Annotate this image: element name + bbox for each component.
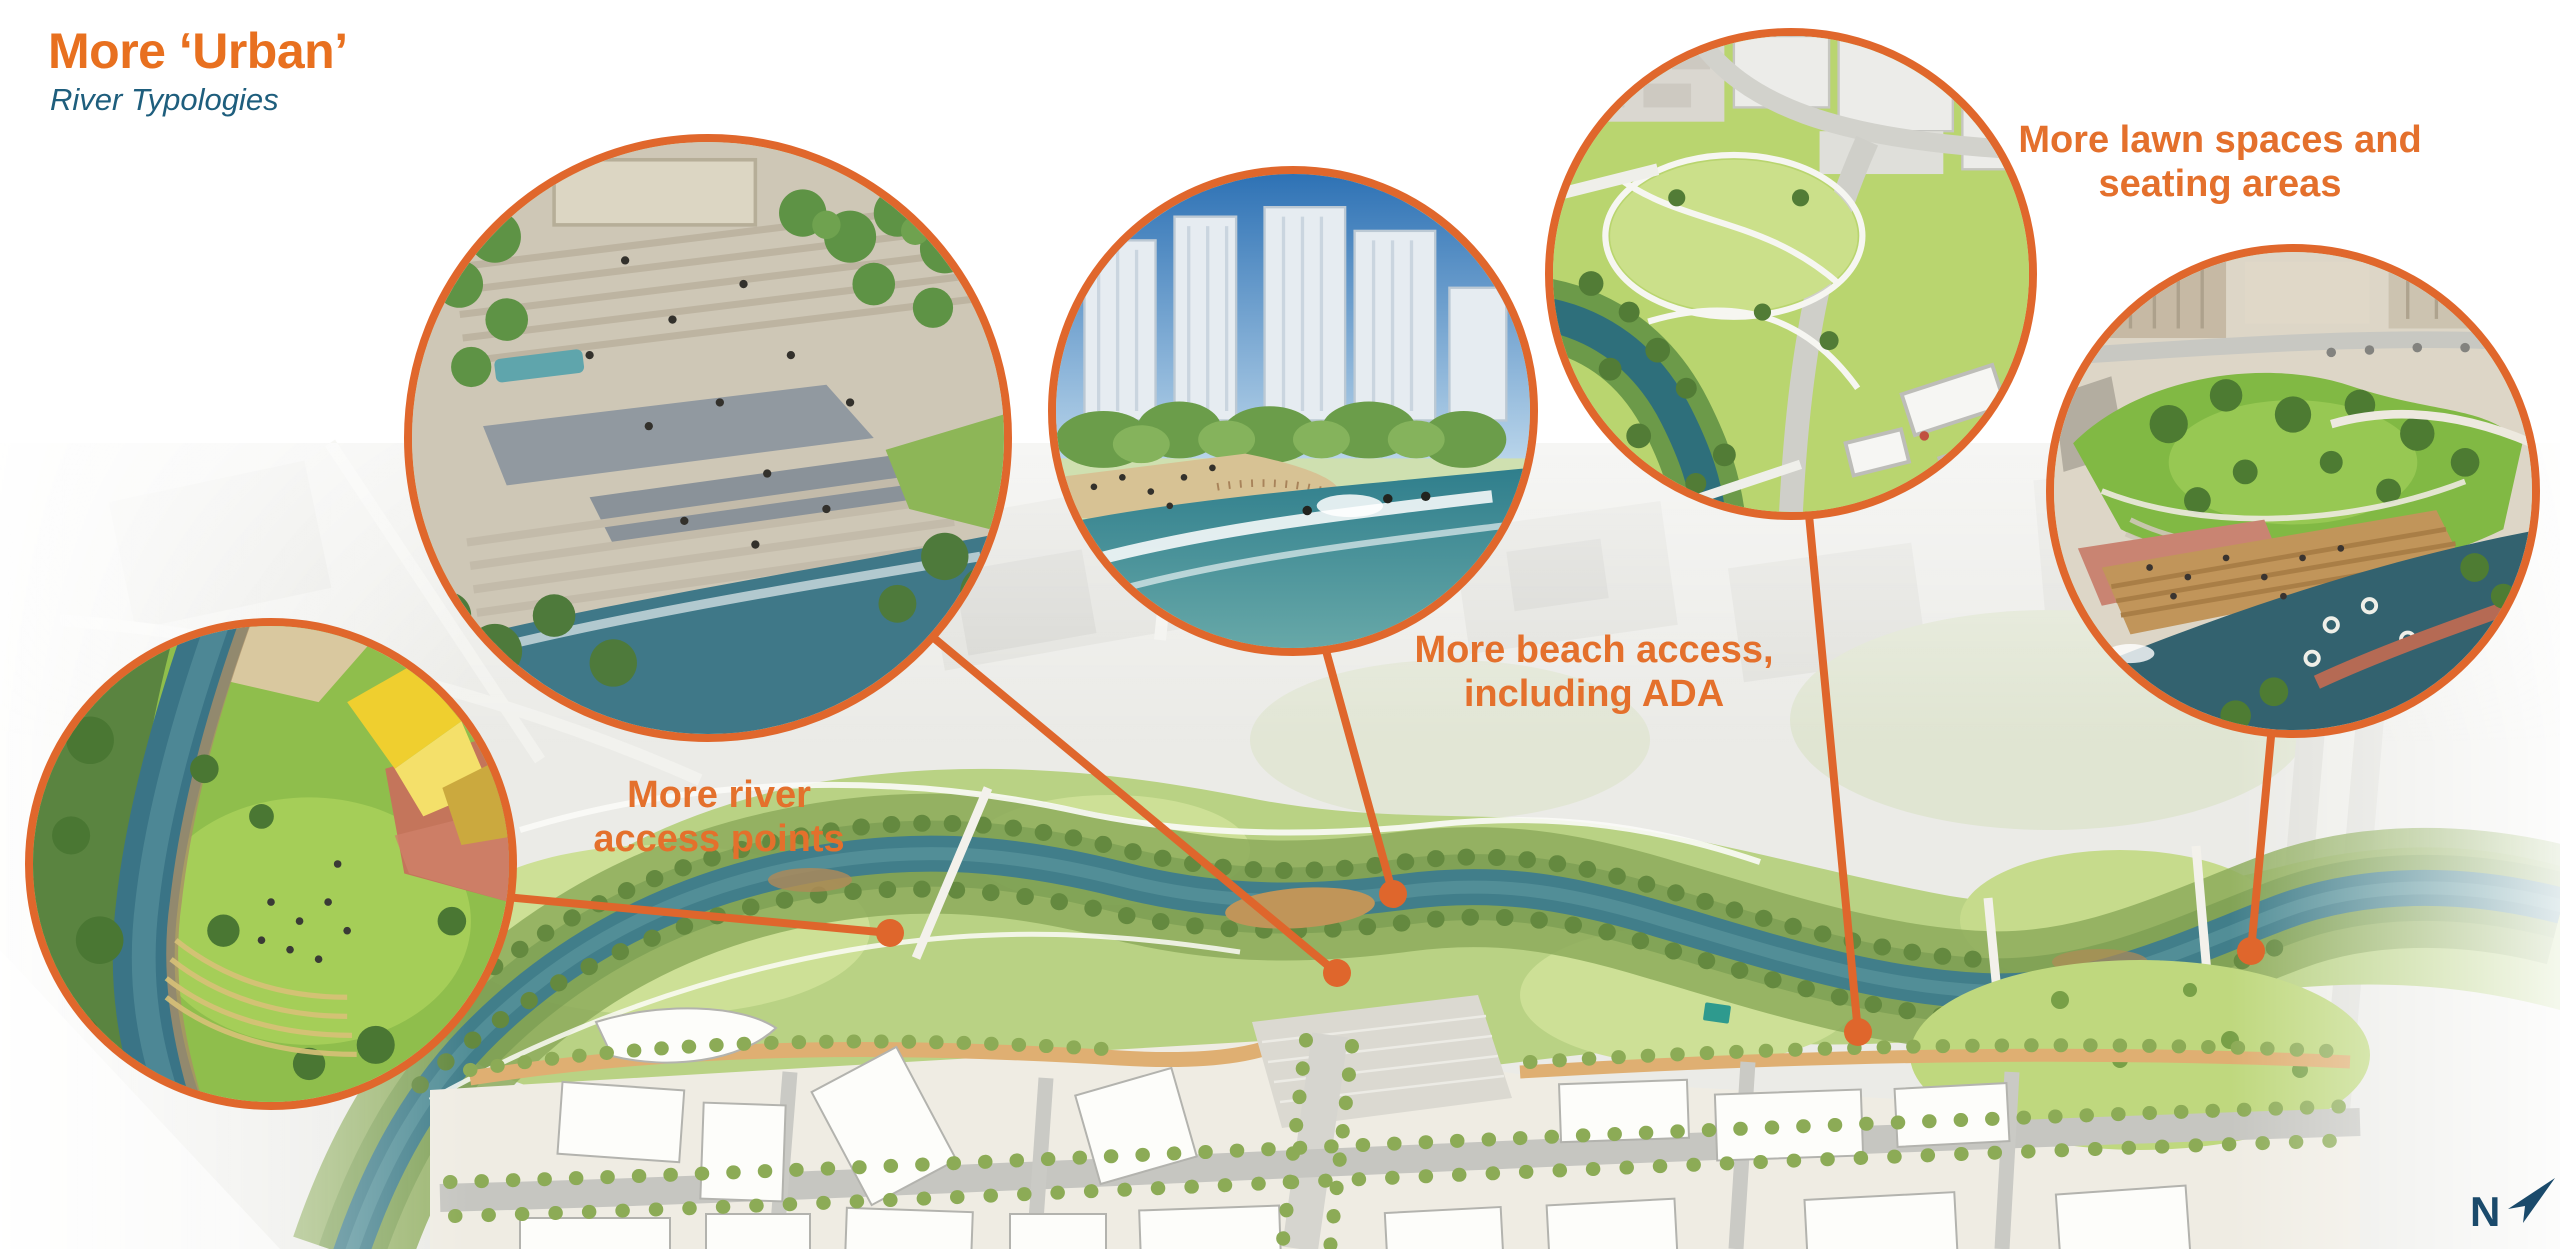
leader-dot-stepped-plaza [1323, 959, 1351, 987]
neighborhood-park-rendering [1553, 36, 2029, 512]
annotation-beach-line1: More beach access, [1414, 628, 1773, 672]
riverfront-lawn-rendering [33, 626, 509, 1102]
annotation-river-access: More river access points [593, 773, 844, 861]
annotation-beach-access: More beach access, including ADA [1414, 628, 1773, 716]
urban-beach-rendering [1056, 174, 1530, 648]
stepped-plaza-rendering [412, 142, 1004, 734]
annotation-lawn-line1: More lawn spaces and [2018, 118, 2421, 162]
callout-stepped-plaza [404, 134, 1012, 742]
annotation-beach-line2: including ADA [1414, 672, 1773, 716]
north-arrow-icon [2498, 1166, 2560, 1234]
annotation-river-line2: access points [593, 817, 844, 861]
callout-riverfront-lawn [25, 618, 517, 1110]
leader-dot-urban-beach [1379, 880, 1407, 908]
callout-neighborhood-park [1545, 28, 2037, 520]
leader-dot-neighborhood-park [1844, 1018, 1872, 1046]
callout-terraced-riverfront [2046, 244, 2540, 738]
annotation-lawn-seating: More lawn spaces and seating areas [2018, 118, 2421, 206]
annotation-river-line1: More river [593, 773, 844, 817]
leader-dot-river-lawn [876, 919, 904, 947]
page-title: More ‘Urban’ [48, 24, 348, 78]
leader-dot-terraced-riverfront [2237, 937, 2265, 965]
page-subtitle: River Typologies [50, 82, 279, 118]
north-label: N [2470, 1188, 2500, 1236]
annotation-lawn-line2: seating areas [2018, 162, 2421, 206]
terraced-riverfront-rendering [2054, 252, 2532, 730]
slide: More ‘Urban’ River Typologies More lawn … [0, 0, 2560, 1249]
callout-urban-beach [1048, 166, 1538, 656]
